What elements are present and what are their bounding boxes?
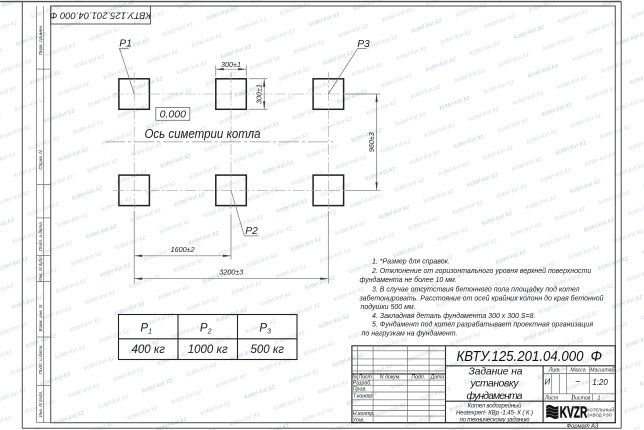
svg-text:фундамента: фундамента	[467, 390, 523, 402]
svg-text:по нагрузкам на фундамент.: по нагрузкам на фундамент.	[362, 330, 458, 338]
svg-text:Ось симетрии котла: Ось симетрии котла	[145, 126, 261, 141]
svg-text:Лист: Лист	[544, 395, 559, 401]
svg-text:установку: установку	[470, 379, 520, 390]
svg-text:1. *Размер для справок.: 1. *Размер для справок.	[372, 257, 450, 265]
svg-text:0.000: 0.000	[160, 109, 186, 121]
svg-text:Масса: Масса	[570, 367, 585, 373]
svg-text:Задание на: Задание на	[469, 367, 523, 378]
svg-text:КВТУ.125.201.04.000: КВТУ.125.201.04.000	[457, 349, 584, 365]
svg-text:1000 кг: 1000 кг	[188, 344, 228, 356]
svg-text:300±1: 300±1	[255, 84, 264, 104]
svg-text:–: –	[575, 376, 581, 386]
svg-text:P1: P1	[119, 39, 132, 50]
svg-text:Heatexpert- КВр -1,45- К ( К ): Heatexpert- КВр -1,45- К ( К )	[456, 411, 533, 417]
svg-text:Лит.: Лит.	[548, 367, 561, 373]
svg-text:ЗАВОД РЭП: ЗАВОД РЭП	[587, 412, 612, 417]
svg-text:400 кг: 400 кг	[131, 344, 165, 356]
svg-text:фундамента не более 10 мм.: фундамента не более 10 мм.	[360, 276, 457, 284]
svg-text:И: И	[545, 378, 551, 387]
svg-text:забетонировать. Расстояние о: забетонировать. Расстояние от осей крайн…	[359, 295, 604, 303]
svg-text:N докум.: N докум.	[380, 375, 401, 381]
svg-text:Дата: Дата	[429, 375, 444, 381]
svg-text:подушки 500 мм.: подушки 500 мм.	[361, 303, 416, 311]
svg-text:Подп. и дата: Подп. и дата	[38, 345, 43, 374]
svg-text:960±3: 960±3	[367, 132, 376, 152]
svg-text:Подп.: Подп.	[411, 375, 425, 381]
svg-text:по техническому заданию: по техническому заданию	[460, 417, 530, 423]
svg-text:Перв. примен.: Перв. примен.	[38, 25, 43, 56]
svg-text:Формат А3: Формат А3	[567, 424, 599, 430]
svg-text:3. В случае отсутствия бет: 3. В случае отсутствия бетонного пола пл…	[372, 286, 580, 294]
svg-text:Инв. N подл.: Инв. N подл.	[38, 391, 43, 418]
svg-text:Т.контр.: Т.контр.	[353, 394, 374, 400]
svg-text:Пров.: Пров.	[353, 387, 367, 393]
svg-text:1:20: 1:20	[592, 378, 608, 387]
svg-text:КВТУ.125.201.04.000 Ф: КВТУ.125.201.04.000 Ф	[49, 10, 151, 21]
svg-text:Н.контр.: Н.контр.	[353, 411, 375, 417]
svg-text:2. Отклонение от горизонтал: 2. Отклонение от горизонтального уровня …	[371, 267, 591, 275]
svg-text:3200±3: 3200±3	[219, 268, 243, 277]
svg-text:P3: P3	[357, 39, 370, 50]
svg-text:Котел водогрейный: Котел водогрейный	[468, 402, 523, 409]
svg-text:1: 1	[598, 395, 601, 401]
svg-text:Справ. N: Справ. N	[38, 150, 43, 170]
svg-text:1600±2: 1600±2	[171, 245, 195, 254]
svg-text:4. Закладная деталь фундаме: 4. Закладная деталь фундамента 300 x 300…	[372, 312, 536, 320]
svg-text:Разраб.: Разраб.	[353, 381, 372, 387]
svg-text:Подп. и дата: Подп. и дата	[38, 222, 43, 251]
svg-text:Листов: Листов	[571, 395, 591, 401]
svg-text:Инв. N дубл.: Инв. N дубл.	[38, 255, 43, 282]
svg-text:P2: P2	[245, 226, 258, 237]
svg-text:Утв.: Утв.	[353, 417, 365, 423]
svg-text:Взам. инв. N: Взам. инв. N	[38, 304, 43, 331]
svg-text:300±1: 300±1	[221, 60, 241, 69]
svg-text:Масштаб: Масштаб	[590, 367, 615, 373]
svg-text:KVZR: KVZR	[560, 403, 588, 421]
svg-text:Ф: Ф	[591, 349, 603, 365]
svg-text:500 кг: 500 кг	[250, 344, 284, 356]
svg-text:5. Фундамент под котел раз: 5. Фундамент под котел разрабатывает про…	[372, 321, 593, 329]
